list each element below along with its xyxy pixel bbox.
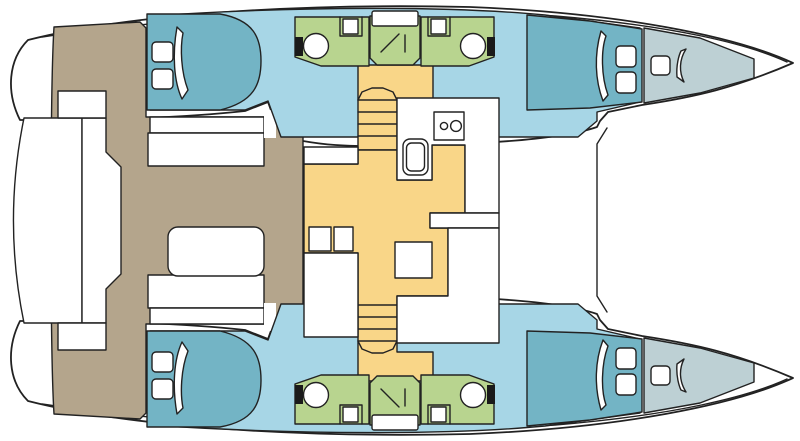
skylight bbox=[372, 11, 418, 26]
cockpit-bench-bottom-outer bbox=[150, 308, 264, 324]
cockpit-bench-bottom bbox=[148, 275, 264, 308]
deck-hatch bbox=[616, 348, 636, 369]
stern-locker-top bbox=[58, 91, 106, 118]
deck-hatch bbox=[651, 366, 670, 385]
toilet bbox=[304, 34, 329, 59]
nav-locker bbox=[304, 147, 358, 164]
saloon-sofa bbox=[304, 253, 358, 337]
aft-cabin-top bbox=[147, 14, 261, 110]
bathroom-bottom-left bbox=[295, 375, 369, 424]
stool bbox=[334, 227, 353, 251]
galley-sink bbox=[403, 139, 428, 175]
toilet bbox=[304, 383, 329, 408]
bathroom-top-right bbox=[421, 17, 495, 66]
toilet bbox=[461, 34, 486, 59]
toilet-tank bbox=[295, 37, 303, 56]
stern-locker-bottom bbox=[58, 323, 106, 350]
deck-hatch bbox=[616, 374, 636, 395]
pillow bbox=[152, 379, 173, 399]
bathroom-sink bbox=[343, 19, 358, 34]
bathroom-bottom-right bbox=[421, 375, 495, 424]
deck-hatch bbox=[616, 72, 636, 93]
toilet-tank bbox=[295, 385, 303, 404]
aft-cabin-bottom bbox=[147, 331, 261, 427]
shower-bottom bbox=[370, 376, 420, 430]
bathroom-sink bbox=[431, 407, 446, 422]
deck-hatch bbox=[651, 56, 670, 75]
stool bbox=[309, 227, 331, 251]
bathroom-sink bbox=[343, 407, 358, 422]
pillow bbox=[152, 69, 173, 89]
pillow bbox=[152, 352, 173, 372]
pillow bbox=[152, 42, 173, 62]
forward-cabin-top bbox=[527, 15, 642, 110]
floorplan bbox=[0, 0, 800, 441]
toilet bbox=[461, 383, 486, 408]
bathroom-sink bbox=[431, 19, 446, 34]
shower-top bbox=[370, 11, 420, 65]
catamaran-floorplan-svg bbox=[0, 0, 800, 441]
forward-cabin-bottom bbox=[527, 331, 642, 426]
skylight bbox=[372, 415, 418, 430]
stove bbox=[434, 112, 464, 140]
saloon-table bbox=[395, 242, 432, 278]
toilet-tank bbox=[487, 385, 495, 404]
deck-hatch bbox=[616, 46, 636, 67]
crossbeam-line bbox=[597, 128, 607, 312]
aft-platform bbox=[14, 118, 83, 323]
bathroom-top-left bbox=[295, 17, 369, 66]
forepeak-top bbox=[644, 28, 754, 103]
cockpit-table bbox=[168, 227, 264, 276]
saloon-front-door bbox=[430, 213, 499, 228]
toilet-tank bbox=[487, 37, 495, 56]
cockpit-bench-top-outer bbox=[150, 117, 264, 133]
cockpit-bench-top bbox=[148, 133, 264, 166]
forepeak-bottom bbox=[644, 338, 754, 413]
